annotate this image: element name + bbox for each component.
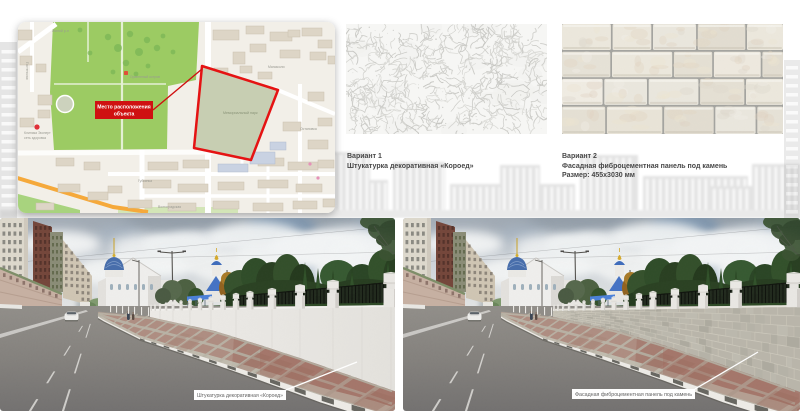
svg-text:Магазколи: Магазколи: [268, 65, 285, 69]
svg-text:Губкинка: Губкинка: [138, 179, 152, 183]
svg-text:Мемориальный парк: Мемориальный парк: [223, 111, 258, 115]
svg-text:Остановка: Остановка: [300, 127, 317, 131]
svg-text:Ораненный остров: Ораненный остров: [130, 75, 160, 79]
svg-text:сеть здоровья: сеть здоровья: [24, 136, 46, 140]
svg-text:объекта: объекта: [114, 111, 135, 118]
svg-text:Гостенская: Гостенская: [25, 62, 29, 80]
svg-text:Клиника Эксперт: Клиника Эксперт: [24, 131, 51, 135]
svg-text:Жилой р-н: Жилой р-н: [52, 29, 69, 33]
svg-text:Волгоградская: Волгоградская: [158, 205, 181, 209]
svg-text:Место расположения: Место расположения: [97, 105, 150, 111]
